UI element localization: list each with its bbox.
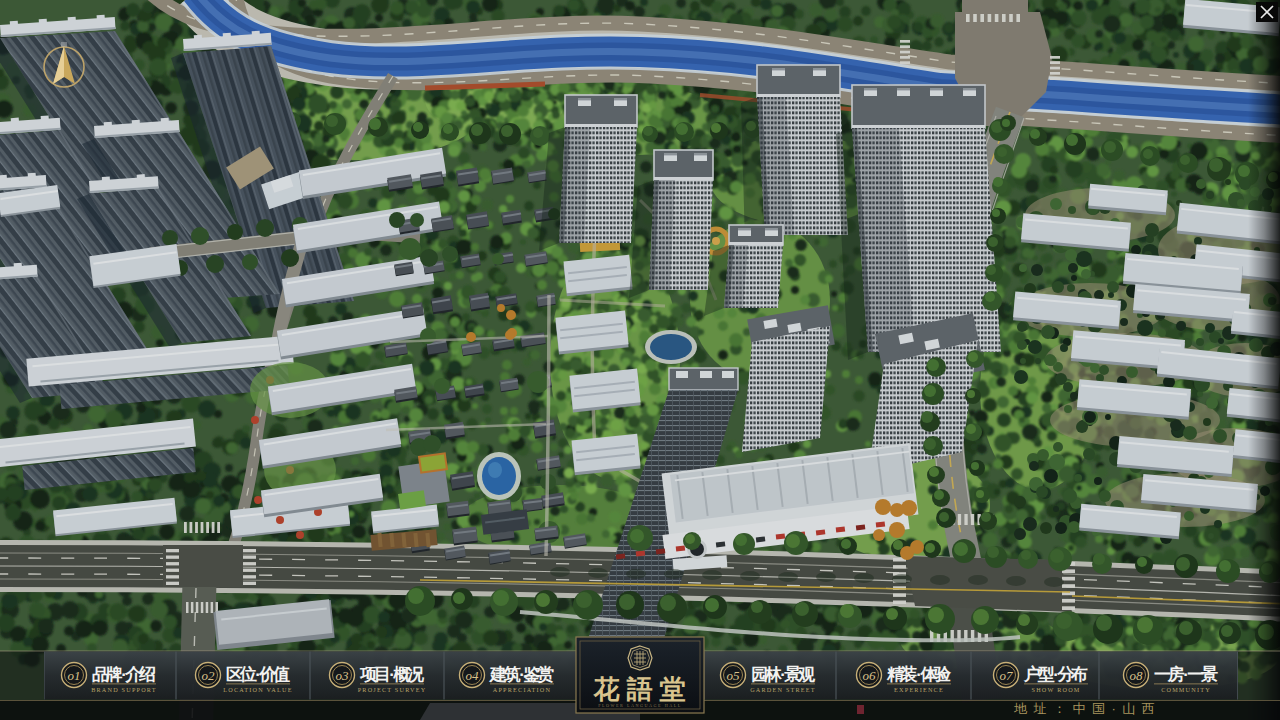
svg-text:o6: o6 xyxy=(863,668,877,683)
svg-text:精装 · 体验: 精装 · 体验 xyxy=(886,665,952,684)
svg-text:FLOWER LANGUAGE HALL: FLOWER LANGUAGE HALL xyxy=(598,703,682,708)
svg-text:花語堂: 花語堂 xyxy=(593,675,693,704)
svg-text:o7: o7 xyxy=(1000,668,1014,683)
svg-text:GARDEN STREET: GARDEN STREET xyxy=(750,686,816,693)
svg-text:项目 · 概况: 项目 · 概况 xyxy=(359,665,425,684)
svg-text:COMMUNITY: COMMUNITY xyxy=(1161,686,1211,693)
svg-text:SHOW ROOM: SHOW ROOM xyxy=(1031,686,1080,693)
svg-text:o5: o5 xyxy=(727,668,741,683)
svg-text:o8: o8 xyxy=(1130,668,1144,683)
svg-text:o2: o2 xyxy=(202,668,216,683)
svg-text:PROJECT SURVEY: PROJECT SURVEY xyxy=(358,686,427,693)
svg-text:地址：中国·山西: 地址：中国·山西 xyxy=(1014,701,1161,716)
svg-text:EXPERIENCE: EXPERIENCE xyxy=(894,686,944,693)
svg-text:区位 · 价值: 区位 · 价值 xyxy=(226,665,290,684)
svg-text:o1: o1 xyxy=(68,668,81,683)
svg-text:一房 · 一景: 一房 · 一景 xyxy=(1154,665,1218,684)
svg-text:建筑 · 鉴赏: 建筑 · 鉴赏 xyxy=(489,665,554,684)
svg-text:LOCATION VALUE: LOCATION VALUE xyxy=(223,686,292,693)
svg-text:o3: o3 xyxy=(336,668,350,683)
svg-text:BRAND SUPPORT: BRAND SUPPORT xyxy=(91,686,157,693)
svg-text:APPRECIATION: APPRECIATION xyxy=(493,686,551,693)
svg-text:户型 · 分布: 户型 · 分布 xyxy=(1023,664,1088,684)
svg-text:o4: o4 xyxy=(466,668,480,683)
svg-text:园林 · 景观: 园林 · 景观 xyxy=(751,665,816,684)
svg-text:品牌 · 介绍: 品牌 · 介绍 xyxy=(92,665,156,684)
